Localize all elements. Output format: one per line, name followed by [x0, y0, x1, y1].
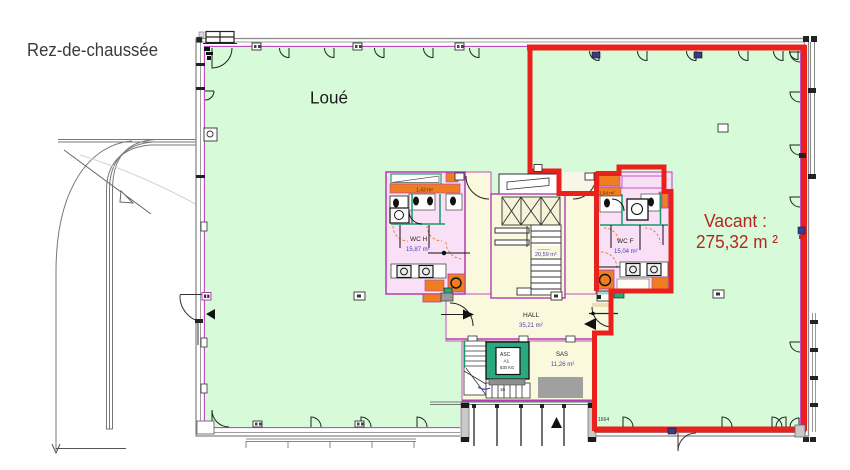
svg-text:15,87 m²: 15,87 m² — [406, 247, 430, 253]
svg-text:1,54 m²: 1,54 m² — [599, 191, 615, 196]
svg-text:HALL: HALL — [523, 312, 540, 319]
svg-text:35,21 m²: 35,21 m² — [519, 323, 543, 329]
svg-text:16: 16 — [500, 387, 506, 392]
svg-text:ASC: ASC — [500, 352, 511, 358]
svg-text:Loué: Loué — [310, 88, 348, 108]
svg-text:11,26 m²: 11,26 m² — [551, 362, 574, 368]
svg-text:Vacant :: Vacant : — [704, 210, 767, 231]
svg-text:20,59 m²: 20,59 m² — [535, 252, 557, 258]
svg-text:SAS: SAS — [556, 352, 568, 358]
svg-text:Rez-de-chaussée: Rez-de-chaussée — [27, 39, 158, 60]
svg-text:1,43 m²: 1,43 m² — [416, 188, 433, 194]
svg-text:A1: A1 — [504, 359, 510, 364]
svg-text:WC F: WC F — [617, 238, 634, 245]
svg-text:630 KG: 630 KG — [500, 365, 514, 370]
svg-text:275,32 m ²: 275,32 m ² — [696, 231, 778, 252]
svg-text:15,04 m²: 15,04 m² — [614, 249, 638, 255]
svg-text:1664: 1664 — [598, 417, 609, 423]
svg-text:WC H: WC H — [410, 236, 428, 243]
